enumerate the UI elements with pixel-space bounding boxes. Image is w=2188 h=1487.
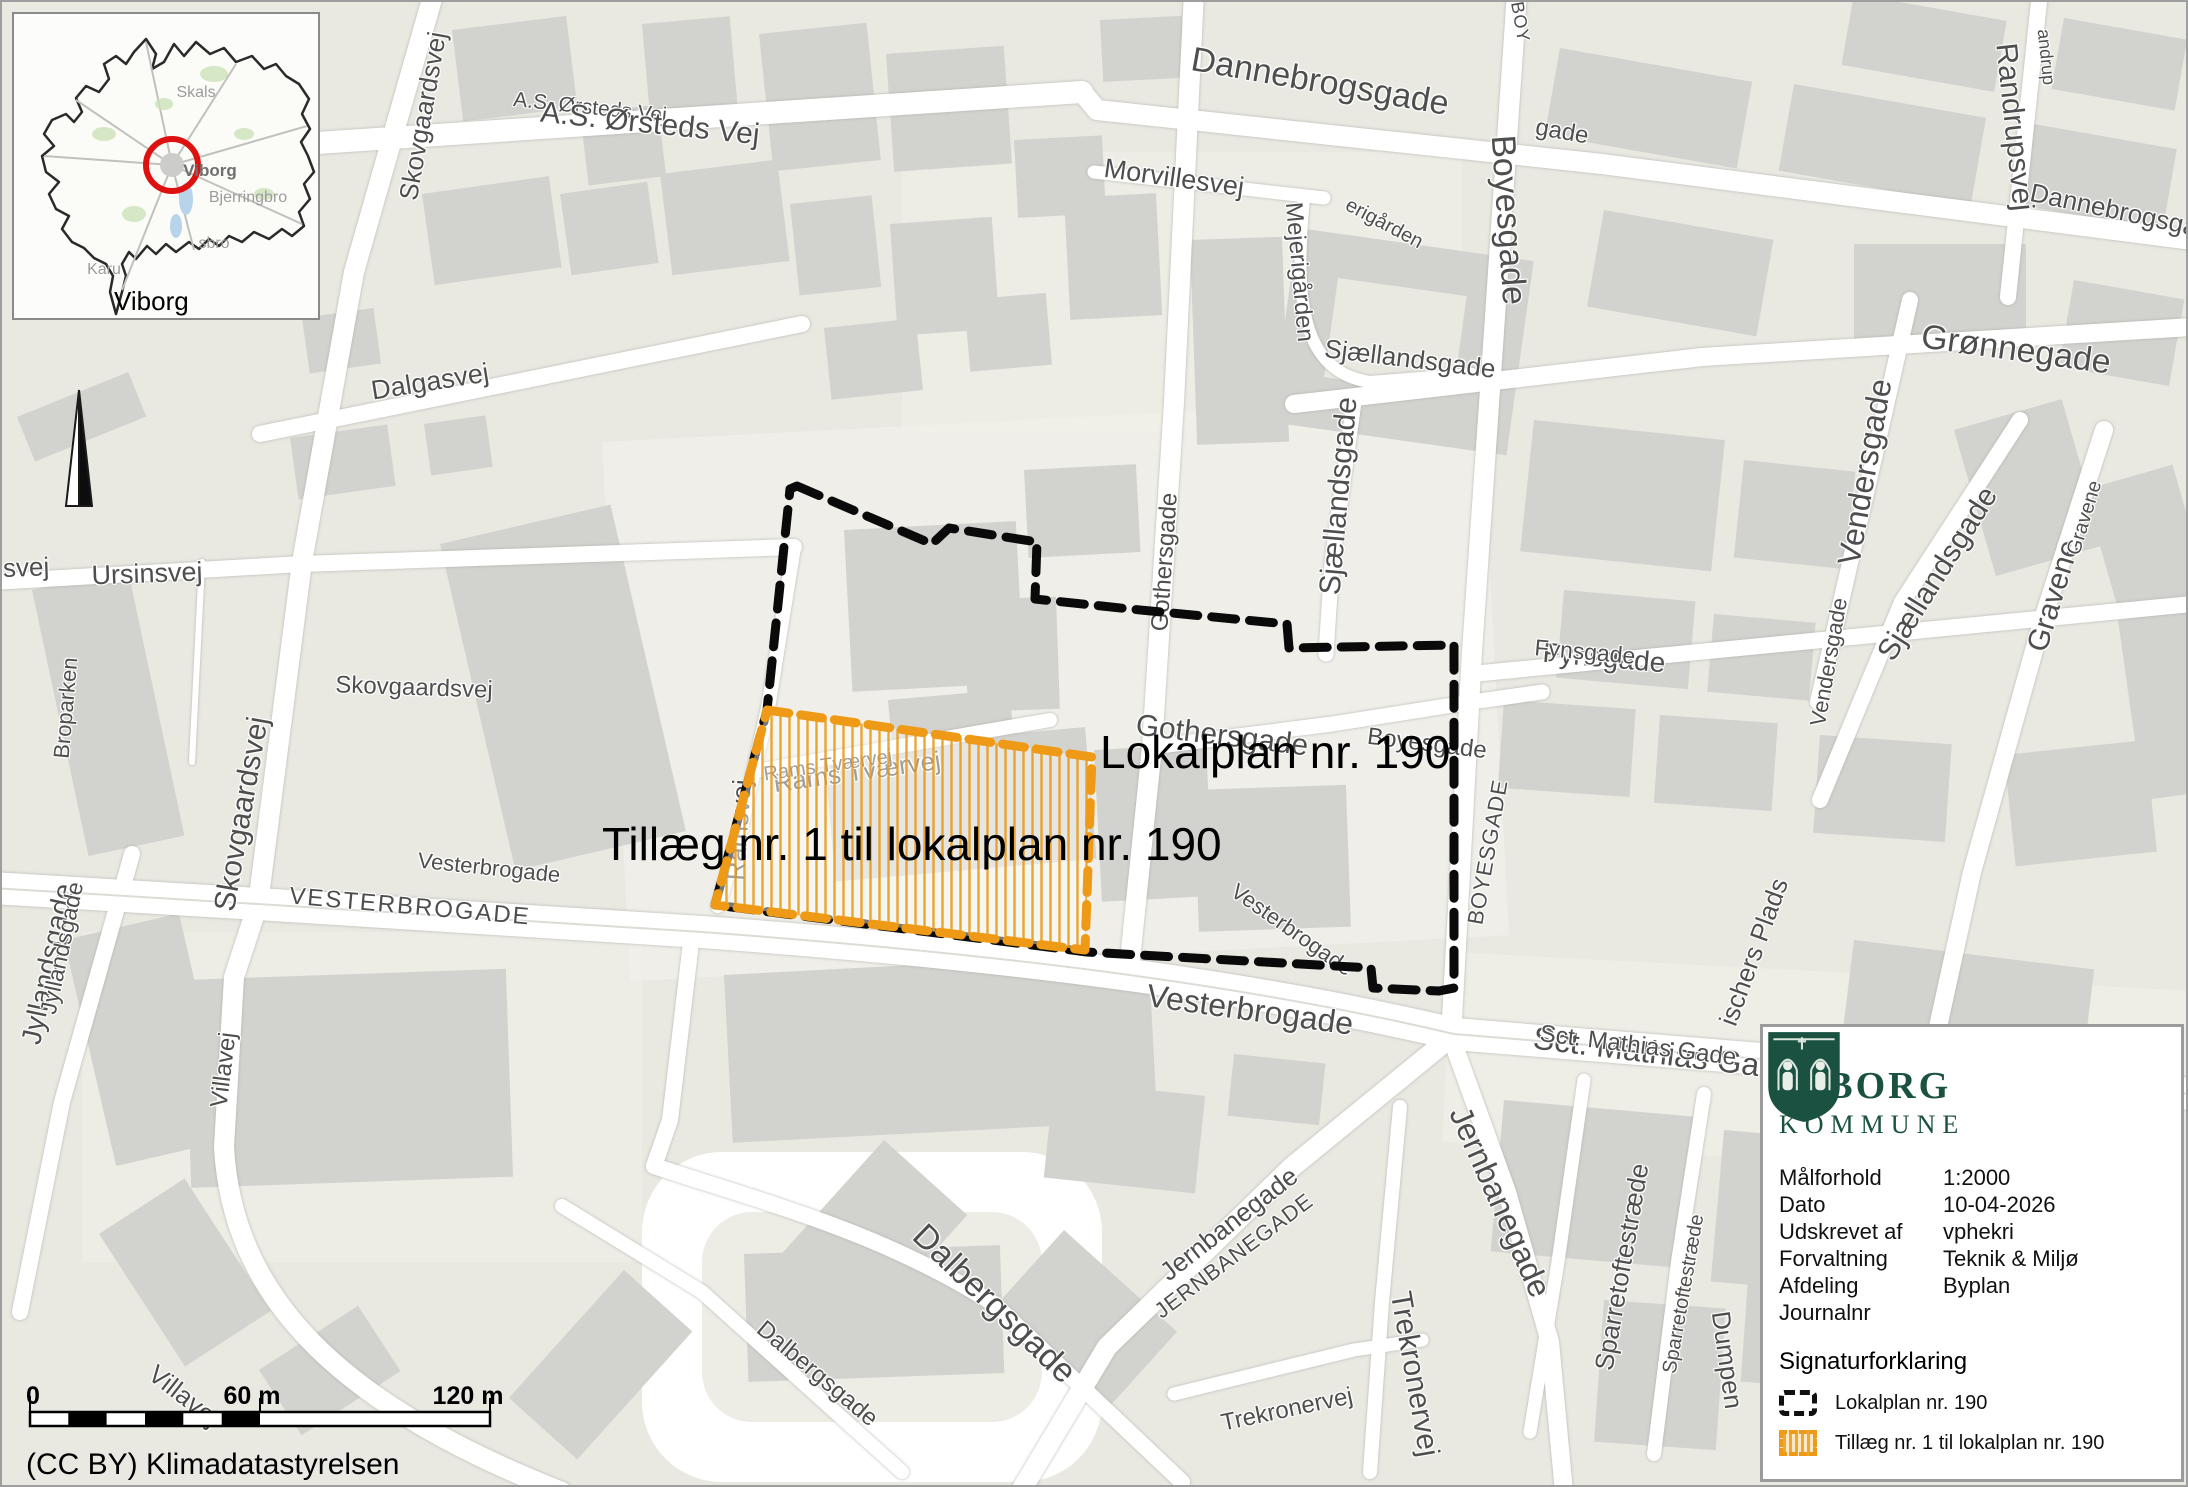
print-metadata: Målforhold 1:2000 Dato 10-04-2026 Udskre… [1779,1164,2165,1326]
meta-value: Byplan [1943,1272,2010,1299]
meta-label: Forvaltning [1779,1245,1943,1272]
inset-town-label: Skals [176,84,215,102]
tillaeg-label: Tillæg nr. 1 til lokalplan nr. 190 [602,817,1222,871]
inset-outline-map [14,14,318,318]
legend-item-tillaeg: Tillæg nr. 1 til lokalplan nr. 190 [1779,1430,2165,1456]
scale-end-label: 120 m [433,1382,504,1410]
kommune-logo: VİBORG KOMMUNE [1779,1043,2165,1140]
meta-row-maalforhold: Målforhold 1:2000 [1779,1164,2165,1191]
plan-map-view: SkovgaardsvejA.S. Ørsteds VejA.S. Ørsted… [0,0,2188,1487]
map-info-box: VİBORG KOMMUNE Målforhold 1:2000 Dato 10… [1760,1024,2184,1482]
meta-value: 1:2000 [1943,1164,2010,1191]
meta-label: Afdeling [1779,1272,1943,1299]
meta-row-forvaltning: Forvaltning Teknik & Miljø [1779,1245,2165,1272]
lokalplan-swatch-icon [1779,1390,1817,1416]
meta-label: Målforhold [1779,1164,1943,1191]
legend-item-lokalplan: Lokalplan nr. 190 [1779,1390,2165,1416]
meta-value: 10-04-2026 [1943,1191,2056,1218]
legend-label: Tillæg nr. 1 til lokalplan nr. 190 [1835,1432,2104,1455]
meta-value: vphekri [1943,1218,2014,1245]
legend-title: Signaturforklaring [1779,1348,2165,1376]
lokalplan-label: Lokalplan nr. 190 [1100,725,1450,779]
meta-row-afdeling: Afdeling Byplan [1779,1272,2165,1299]
overview-inset-map: SkalsViborgBjerringbrosbroKaru Viborg [12,12,320,320]
tillaeg-swatch-icon [1779,1430,1817,1456]
inset-town-label: Karu [87,261,121,279]
scale-bar: 0 60 m 120 m [26,1382,503,1426]
meta-label: Journalnr [1779,1299,1943,1326]
legend-label: Lokalplan nr. 190 [1835,1392,1987,1415]
inset-caption: Viborg [114,286,189,317]
municipality-outline [42,39,314,314]
kommune-shield-icon [1763,1027,1845,1125]
scale-zero-label: 0 [26,1382,40,1410]
meta-row-journalnr: Journalnr [1779,1299,2165,1326]
inset-town-label: Viborg [183,161,237,181]
meta-row-dato: Dato 10-04-2026 [1779,1191,2165,1218]
scale-mid-label: 60 m [224,1382,281,1410]
meta-label: Udskrevet af [1779,1218,1943,1245]
inset-town-label: Bjerringbro [209,189,287,207]
meta-row-udskrevet-af: Udskrevet af vphekri [1779,1218,2165,1245]
inset-town-label: sbro [198,235,229,253]
north-arrow-icon [66,390,92,506]
meta-value: Teknik & Miljø [1943,1245,2079,1272]
meta-label: Dato [1779,1191,1943,1218]
attribution-text: (CC BY) Klimadatastyrelsen [26,1448,399,1482]
inset-city-area [160,153,184,177]
